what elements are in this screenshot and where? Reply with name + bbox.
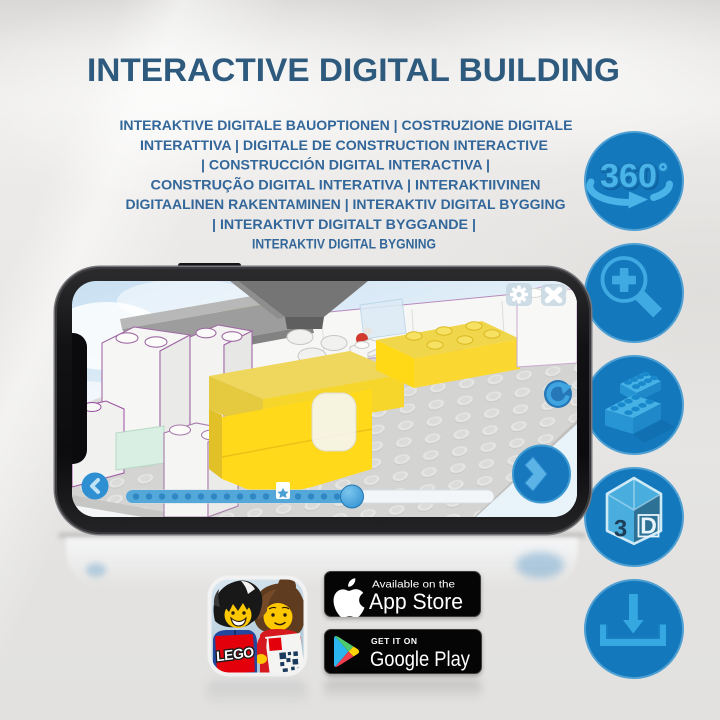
svg-text:INTERAKTIVE DIGITALE BAUOPTION: INTERAKTIVE DIGITALE BAUOPTIONEN | COSTR… [120, 118, 573, 133]
svg-text:INTERATTIVA | DIGITALE DE CONS: INTERATTIVA | DIGITALE DE CONSTRUCTION I… [140, 138, 548, 153]
svg-text:3: 3 [614, 516, 627, 543]
svg-text:| CONSTRUCCIÓN DIGITAL INTERAC: | CONSTRUCCIÓN DIGITAL INTERACTIVA | [201, 158, 490, 173]
svg-text:INTERACTIVE DIGITAL BUILDING: INTERACTIVE DIGITAL BUILDING [87, 52, 620, 88]
svg-text:DIGITAALINEN RAKENTAMINEN | IN: DIGITAALINEN RAKENTAMINEN | INTERAKTIV D… [126, 197, 566, 212]
svg-text:GET IT ON: GET IT ON [371, 636, 417, 646]
svg-text:Google Play: Google Play [370, 647, 470, 671]
svg-text:CONSTRUÇÃO DIGITAL INTERATIVA: CONSTRUÇÃO DIGITAL INTERATIVA | INTERAKT… [151, 177, 541, 192]
svg-text:INTERAKTIV DIGITAL BYGNING: INTERAKTIV DIGITAL BYGNING [252, 236, 436, 251]
svg-text:| INTERAKTIVT DIGITALT BYGGAND: | INTERAKTIVT DIGITALT BYGGANDE | [212, 217, 476, 232]
svg-text:App Store: App Store [369, 589, 463, 614]
svg-text:D: D [640, 513, 657, 539]
svg-text:360: 360 [600, 157, 657, 194]
